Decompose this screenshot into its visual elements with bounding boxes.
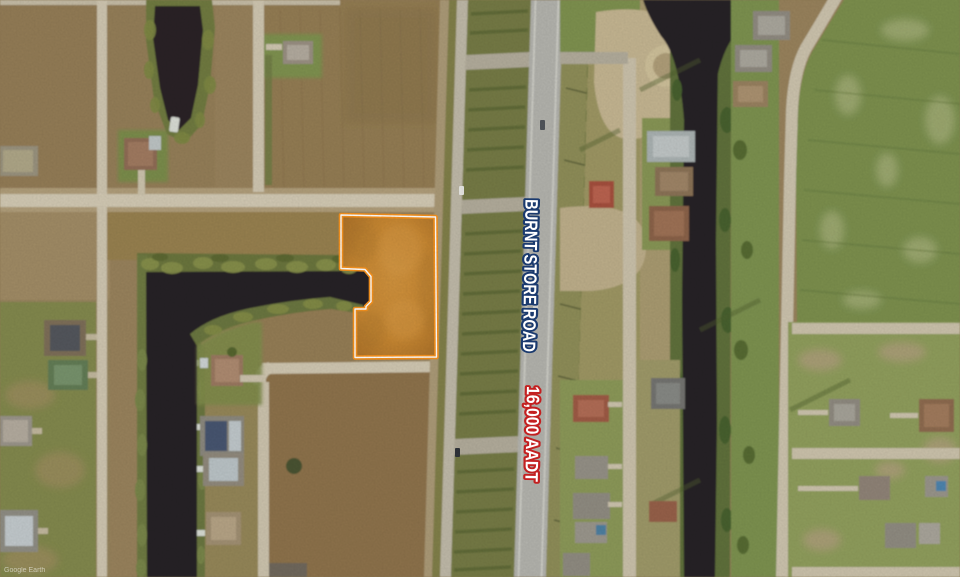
svg-text:BURNT STORE ROAD: BURNT STORE ROAD [518, 199, 540, 352]
svg-text:16,000 AADT: 16,000 AADT [521, 386, 543, 483]
svg-text:Google Earth: Google Earth [4, 567, 45, 574]
